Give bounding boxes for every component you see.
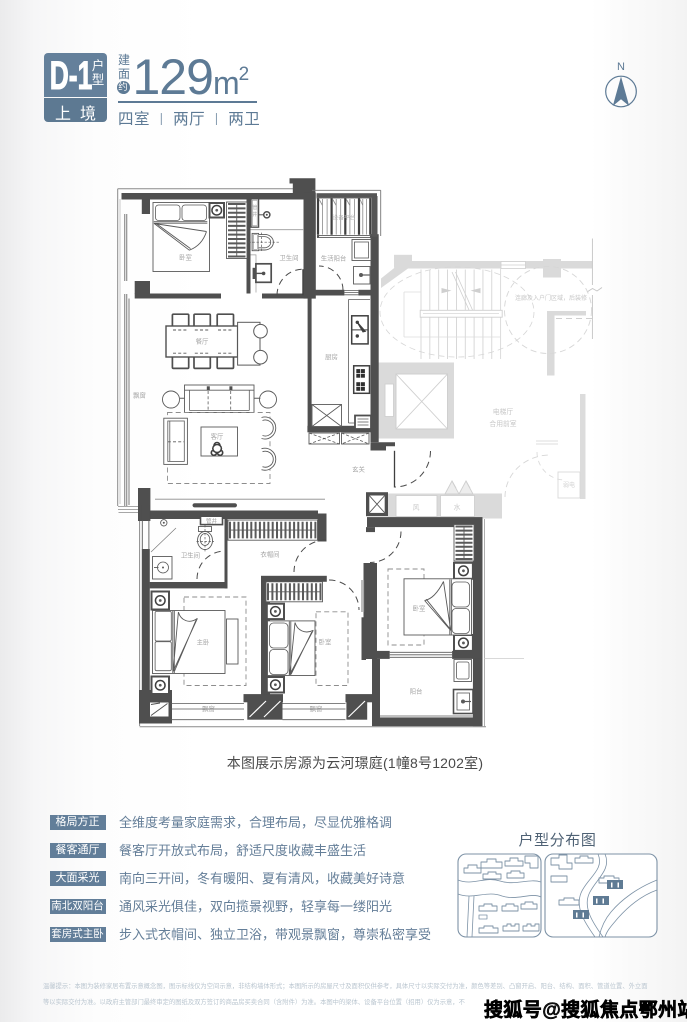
svg-text:管: 管 [252, 203, 257, 211]
svg-text:水: 水 [454, 503, 461, 512]
svg-text:厨房: 厨房 [325, 352, 338, 361]
svg-text:飘窗: 飘窗 [133, 391, 146, 400]
svg-text:阳台: 阳台 [410, 687, 423, 696]
svg-text:设备平台: 设备平台 [332, 214, 355, 222]
svg-text:卫生间: 卫生间 [181, 551, 200, 560]
svg-text:衣帽间: 衣帽间 [260, 550, 279, 559]
svg-text:飘窗: 飘窗 [310, 704, 323, 713]
svg-text:卧室: 卧室 [413, 604, 426, 613]
svg-text:合用前室: 合用前室 [489, 419, 516, 428]
svg-text:卧室: 卧室 [179, 253, 192, 262]
svg-text:弱电: 弱电 [563, 481, 575, 489]
svg-text:玄关: 玄关 [352, 465, 365, 474]
svg-text:井: 井 [252, 210, 257, 218]
svg-text:电梯厅: 电梯厅 [493, 407, 514, 416]
svg-text:生活阳台: 生活阳台 [321, 254, 347, 263]
svg-text:客厅: 客厅 [211, 432, 224, 441]
svg-text:连廊及入户门区域，后装修: 连廊及入户门区域，后装修 [515, 294, 587, 302]
svg-text:卧室: 卧室 [319, 637, 332, 646]
svg-text:飘窗: 飘窗 [202, 704, 215, 713]
svg-text:卫生间: 卫生间 [279, 253, 298, 262]
svg-text:餐厅: 餐厅 [196, 337, 209, 346]
svg-text:管井: 管井 [206, 517, 218, 525]
svg-text:风: 风 [413, 504, 420, 512]
svg-text:主卧: 主卧 [197, 638, 210, 647]
